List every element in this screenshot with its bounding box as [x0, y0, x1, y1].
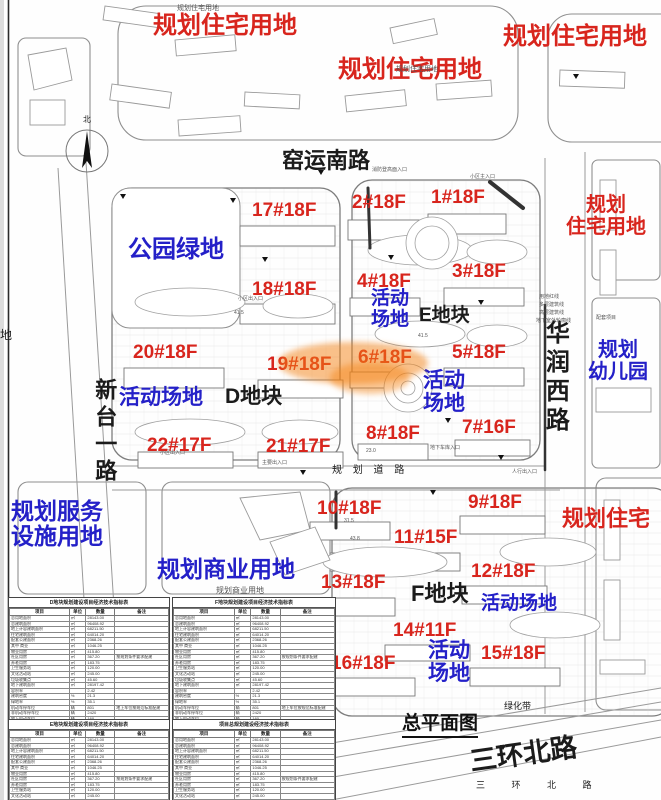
table-indicators-d-title: D地块规划建设项目经济技术指标表: [9, 598, 169, 608]
small-label-residential-2: 规划住宅用地: [396, 66, 438, 74]
building-label-20: 20#18F: [133, 342, 197, 364]
area-label-park: 公园绿地: [128, 237, 224, 263]
column-header: 数量: [251, 609, 280, 616]
column-header: 项目: [174, 609, 235, 616]
column-header: 备注: [115, 731, 169, 738]
table-row: 机动车停车位辆801地上车位按规范标准配建: [10, 705, 169, 711]
tiny-legend-redline: 用地红线: [539, 295, 559, 301]
building-label-18: 18#18F: [252, 279, 316, 301]
building-label-11: 11#15F: [394, 527, 457, 549]
building-label-8: 8#18F: [366, 423, 420, 445]
table-indicators-f: F地块规划建设项目经济技术指标表项目单位数量备注总用地面积㎡28143.00总建…: [172, 597, 336, 729]
road-label-yaoyun-south: 窑运南路: [282, 149, 370, 173]
building-label-5: 5#18F: [452, 342, 506, 364]
road-label-sanhuan-small: 三 环 北 路: [476, 781, 604, 791]
label-di-edge: 地: [0, 329, 12, 342]
road-label-planned-road: 规 划 道 路: [332, 465, 408, 476]
area-label-activity-d: 活动场地: [119, 386, 203, 409]
table-indicators-d: D地块规划建设项目经济技术指标表项目单位数量备注总用地面积㎡28143.00总建…: [8, 597, 170, 729]
tiny-main-entry: 主要出入口: [262, 461, 287, 467]
small-label-commercial: 规划商业用地: [216, 587, 264, 596]
north-arrow: [66, 130, 108, 172]
tiny-main-entrance-1: 小区主入口: [470, 175, 495, 181]
area-label-service: 规划服务 设施用地: [11, 499, 103, 550]
tiny-legend-multi: 多层建筑线: [539, 303, 564, 309]
building-label-2: 2#18F: [352, 192, 406, 214]
building-label-12: 12#18F: [471, 561, 535, 583]
column-header: 备注: [280, 731, 334, 738]
column-header: 项目: [10, 731, 70, 738]
area-label-residential-1: 规划住宅用地: [153, 13, 297, 39]
building-label-22: 22#17F: [147, 435, 211, 457]
column-header: 备注: [115, 609, 169, 616]
building-label-13: 13#18F: [321, 572, 385, 594]
table-indicators-total: 项目总规划建设经济技术指标表项目单位数量备注总用地面积㎡28143.00总建筑面…: [172, 719, 336, 800]
column-header: 单位: [234, 609, 251, 616]
block-label-e: E地块: [419, 306, 470, 327]
building-label-9: 9#18F: [468, 492, 522, 514]
block-label-d: D地块: [225, 385, 282, 408]
building-label-21: 21#17F: [266, 436, 330, 458]
column-header: 数量: [86, 609, 115, 616]
column-header: 数量: [86, 731, 115, 738]
column-header: 数量: [251, 731, 280, 738]
column-header: 项目: [10, 609, 70, 616]
plan-title: 总平面图: [402, 714, 478, 738]
label-north: 北: [83, 116, 91, 125]
tiny-fire-access: 消防登高面入口: [372, 168, 407, 174]
table-row: 机动车停车位辆801地上车位按规范标准配建: [174, 705, 335, 711]
road-label-xintai-yi: 新台一路: [92, 378, 116, 508]
area-label-kindergarten: 规划 幼儿园: [580, 339, 656, 383]
building-label-1: 1#18F: [431, 187, 485, 209]
column-header: 备注: [280, 609, 334, 616]
tiny-ped-entry: 人行出入口: [512, 470, 537, 476]
tiny-garage-entry: 地下车库入口: [430, 446, 460, 452]
column-header: 项目: [174, 731, 235, 738]
building-label-15: 15#18F: [481, 643, 545, 665]
column-header: 单位: [69, 731, 85, 738]
tiny-elev-3: 23.0: [366, 449, 376, 455]
building-label-14: 14#11F: [393, 620, 456, 642]
column-header: 单位: [234, 731, 251, 738]
area-label-residential-4: 规划 住宅用地: [551, 194, 661, 238]
building-label-16: 16#18F: [331, 653, 395, 675]
orange-watermark-2: [330, 362, 410, 394]
area-label-activity-e: 活动 场地: [362, 289, 418, 331]
area-label-activity-f2: 活动 场地: [420, 639, 478, 685]
small-label-residential-1: 规划住宅用地: [177, 5, 219, 13]
building-label-17: 17#18F: [252, 200, 316, 222]
label-green-belt: 绿化带: [504, 702, 531, 712]
building-label-3: 3#18F: [452, 261, 506, 283]
building-label-7: 7#16F: [462, 417, 516, 439]
column-header: 单位: [69, 609, 85, 616]
tiny-legend-high: 高层建筑线: [539, 311, 564, 317]
road-label-huarun-west: 华润西路: [541, 320, 567, 490]
building-label-10: 10#18F: [317, 498, 381, 520]
tiny-support-facility: 配套项目: [596, 316, 616, 322]
table-indicators-e-title: E地块规划建设项目经济技术指标表: [9, 720, 169, 730]
site-plan-canvas: 总平面图 规划住宅用地规划住宅用地规划住宅用地规划 住宅用地规划住宅公园绿地活动…: [0, 0, 661, 800]
tiny-elev-2: 41.5: [418, 334, 428, 340]
area-label-activity-center: 活动 场地: [414, 369, 474, 415]
area-label-residential-5: 规划住宅: [562, 507, 650, 531]
block-label-f: F地块: [411, 582, 468, 606]
table-indicators-total-title: 项目总规划建设经济技术指标表: [173, 720, 335, 730]
tiny-elev-1: 41.5: [234, 311, 244, 317]
tiny-legend-basement: 地下室外轮廓线: [536, 319, 571, 325]
building-label-4: 4#18F: [357, 271, 411, 293]
table-indicators-e: E地块规划建设项目经济技术指标表项目单位数量备注总用地面积㎡28143.00总建…: [8, 719, 170, 800]
tiny-elev-4: 43.8: [350, 537, 360, 543]
area-label-commercial: 规划商业用地: [157, 557, 295, 582]
table-indicators-f-title: F地块规划建设项目经济技术指标表: [173, 598, 335, 608]
area-label-activity-f1: 活动场地: [481, 594, 557, 615]
area-label-residential-3: 规划住宅用地: [503, 24, 647, 50]
